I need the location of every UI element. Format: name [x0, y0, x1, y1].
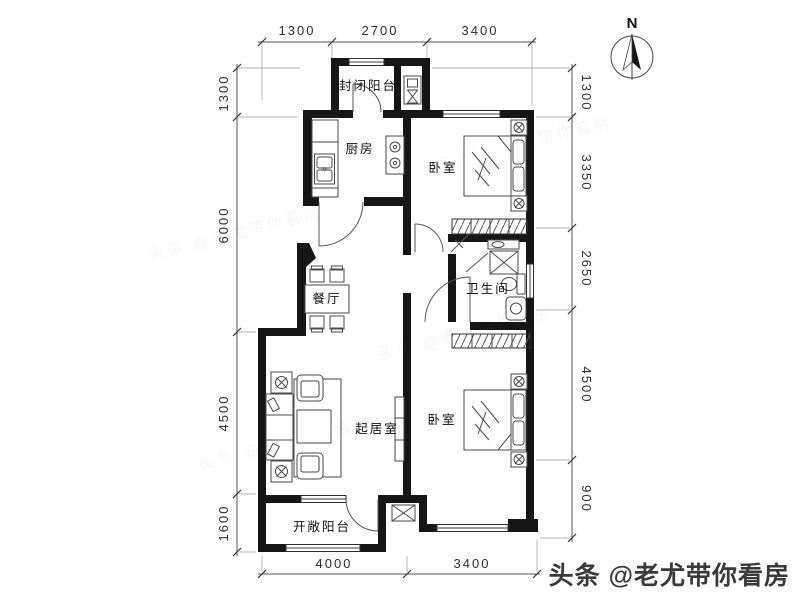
dim-left-1: 1300 — [216, 75, 231, 112]
window-bedroom-south — [437, 525, 508, 532]
wardrobe-icon — [452, 334, 530, 348]
dim-right-5: 900 — [579, 485, 594, 513]
room-label-dining: 餐厅 — [312, 291, 341, 306]
dim-top-1: 1300 — [279, 23, 316, 38]
watermark-text: 头条 @老尤带你看房 — [549, 561, 790, 590]
room-label-kitchen: 厨房 — [345, 141, 374, 156]
dim-top-3: 3400 — [462, 23, 499, 38]
bed-icon — [464, 390, 526, 450]
dim-right-1: 1300 — [579, 75, 594, 112]
dim-right-3: 2650 — [579, 251, 594, 288]
room-label-bathroom: 卫生间 — [466, 282, 510, 296]
dim-left-2: 6000 — [216, 207, 231, 244]
window-balcony-north — [349, 59, 384, 66]
room-label-open-balcony: 开敞阳台 — [293, 519, 351, 534]
room-label-enclosed-balcony: 封闭阳台 — [339, 78, 397, 93]
room-label-bedroom-south: 卧室 — [427, 412, 456, 427]
coffee-table-icon — [297, 410, 331, 443]
dim-bottom-1: 4000 — [316, 556, 353, 571]
floor-plan-svg: 头条 @老尤带你看房 头条 @老尤带你看房 头条 @老尤带你看房 头条 @老尤带… — [0, 0, 800, 600]
dim-left-3: 4500 — [216, 395, 231, 432]
nightstand-lamp-icon — [511, 374, 527, 389]
kitchen-sink-icon — [315, 154, 335, 184]
sofa-icon — [266, 394, 293, 460]
room-label-living: 起居室 — [355, 421, 399, 436]
window-living — [301, 496, 346, 503]
dim-top-2: 2700 — [362, 23, 399, 38]
bed-icon — [464, 136, 526, 196]
dim-bottom-2: 3400 — [454, 556, 491, 571]
side-table-lamp-icon — [271, 461, 292, 482]
flue-shaft-icon — [392, 505, 415, 521]
window-bedroom-north — [443, 111, 500, 118]
dim-right-4: 4500 — [579, 367, 594, 404]
dim-right-2: 3350 — [579, 155, 594, 192]
window-balcony-south — [286, 545, 360, 552]
floor-plan-page: 头条 @老尤带你看房 头条 @老尤带你看房 头条 @老尤带你看房 头条 @老尤带… — [0, 0, 800, 600]
dim-left-4: 1600 — [216, 505, 231, 542]
nightstand-lamp-icon — [511, 120, 527, 135]
nightstand-lamp-icon — [511, 196, 527, 211]
armchair-icon — [297, 375, 323, 401]
side-table-lamp-icon — [271, 372, 292, 393]
north-label: N — [627, 15, 638, 32]
water-heater-icon — [404, 76, 421, 104]
watermark: 头条 @老尤带你看房 头条 @老尤带你看房 — [548, 560, 790, 590]
window-bathroom — [527, 264, 534, 298]
bathroom-sink-icon — [488, 240, 519, 249]
wardrobe-icon — [452, 219, 527, 234]
stove-icon — [386, 136, 404, 174]
armchair-icon — [297, 453, 323, 479]
washing-machine-icon — [506, 297, 526, 320]
nightstand-lamp-icon — [511, 452, 527, 467]
room-label-bedroom-north: 卧室 — [428, 160, 457, 175]
